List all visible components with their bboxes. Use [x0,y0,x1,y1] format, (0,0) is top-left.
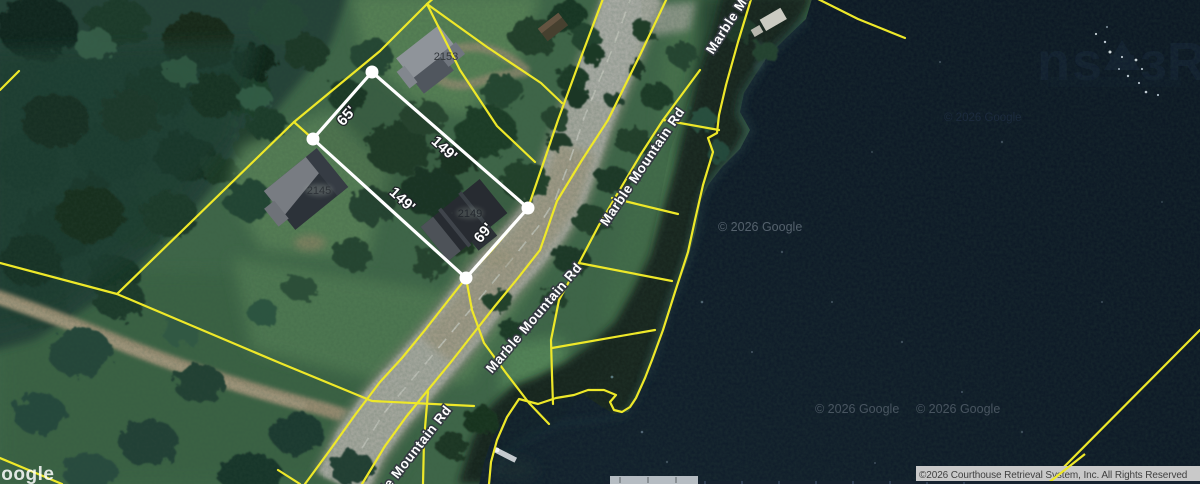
svg-text:© 2026 Google: © 2026 Google [944,112,1022,124]
svg-text:© 2026 Google: © 2026 Google [718,220,802,234]
svg-text:Google: Google [0,464,54,484]
svg-text:© 2026 Google: © 2026 Google [815,402,899,416]
svg-text:2145: 2145 [307,185,331,197]
svg-text:2153: 2153 [434,51,458,63]
svg-text:© 2026 Google: © 2026 Google [916,402,1000,416]
svg-text:2149: 2149 [458,208,482,220]
